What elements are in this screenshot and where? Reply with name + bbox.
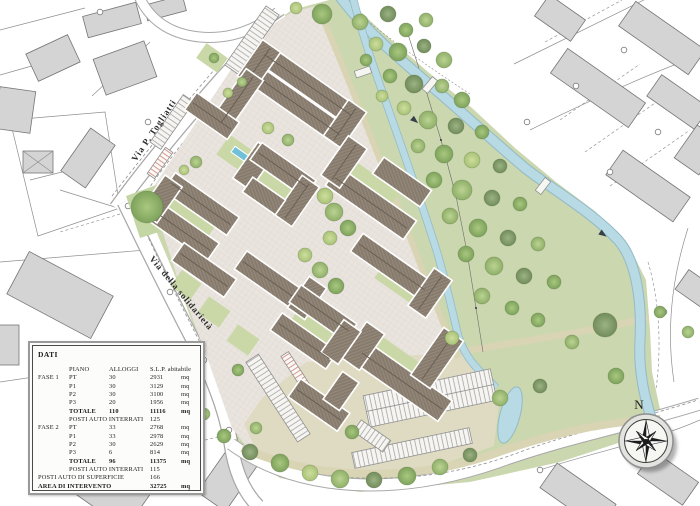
tree [223,88,233,98]
tree [282,134,294,146]
tree [436,52,452,68]
tree [426,172,442,188]
tree [397,101,411,115]
tree [328,278,344,294]
tree [398,467,416,485]
col-piano: PIANO [69,366,109,374]
tree [419,111,437,129]
table-row: P2302629mq [38,441,200,449]
table-row: FASE 1PT302931mq [38,374,200,382]
tree [419,13,433,27]
tree [325,203,343,221]
tree [179,165,189,175]
tree [435,145,453,163]
tree [366,472,382,488]
tree [131,191,163,223]
tree [475,125,489,139]
tree [250,422,262,434]
tree [190,156,202,168]
dati-panel: DATI PIANO ALLOGGI S.L.P. abitabile FASE… [28,341,205,495]
tree [380,6,396,22]
table-header-row: PIANO ALLOGGI S.L.P. abitabile [38,366,200,374]
tree [463,448,477,462]
tree [565,335,579,349]
tree [217,429,231,443]
tree [533,379,547,393]
tree [505,301,519,315]
col-alloggi: ALLOGGI [109,366,150,374]
tree [323,231,337,245]
table-row: AREA DI INTERVENTO32725mq [38,483,200,491]
table-row: TOTALE11011116mq [38,408,200,416]
table-row: P36814mq [38,449,200,457]
tree [531,313,545,327]
tree [302,465,318,481]
tree [298,248,312,262]
tree [442,208,458,224]
tree [432,459,448,475]
tree [411,139,425,153]
tree [593,313,617,337]
tree [209,53,219,63]
tree [237,77,247,87]
tree [389,43,407,61]
table-row: POSTI AUTO DI SUPERFICIE166 [38,474,200,482]
tree [290,2,302,14]
tree [399,23,413,37]
tree [369,37,383,51]
tree [312,4,332,24]
tree [493,159,507,173]
tree [435,79,449,93]
tree [485,257,503,275]
tree [360,54,372,66]
tree [492,390,508,406]
tree [317,188,333,204]
tree [262,122,274,134]
tree [448,118,464,134]
tree [458,246,474,262]
tree [464,152,480,168]
tree [547,275,561,289]
tree [242,444,258,460]
tree [345,425,359,439]
tree [654,306,666,318]
col-slp: S.L.P. abitabile [150,366,200,374]
tree [331,470,349,488]
tree [513,197,527,211]
tree [516,268,532,284]
tree [500,230,516,246]
tree [445,331,459,345]
tree [469,219,487,237]
tree [417,39,431,53]
table-row: POSTI AUTO INTERRATI115 [38,466,200,474]
tree [232,364,244,376]
tree [271,454,289,472]
tree [452,180,472,200]
dati-panel-inner: DATI PIANO ALLOGGI S.L.P. abitabile FASE… [32,345,201,491]
table-row: P3201956mq [38,399,200,407]
tree [608,368,624,384]
table-row: POSTI AUTO INTERRATI125 [38,416,200,424]
tree [405,75,423,93]
tree [352,14,368,30]
masterplan-page: Via P. Togliatti Via della solidarietà [0,0,700,506]
tree [454,92,470,108]
tree [312,262,328,278]
table-row: FASE 2PT332768mq [38,424,200,432]
tree [531,237,545,251]
table-row: TOTALE9611375mq [38,458,200,466]
tree [474,288,490,304]
table-row: P1303129mq [38,383,200,391]
dati-table: PIANO ALLOGGI S.L.P. abitabile FASE 1PT3… [38,366,200,491]
tree [484,190,500,206]
compass-north-label: N [634,397,644,412]
table-row: P1332978mq [38,433,200,441]
tree [340,220,356,236]
table-row: P2303100mq [38,391,200,399]
tree [682,326,694,338]
tree [383,69,397,83]
tree [376,90,388,102]
dati-title: DATI [38,350,197,359]
